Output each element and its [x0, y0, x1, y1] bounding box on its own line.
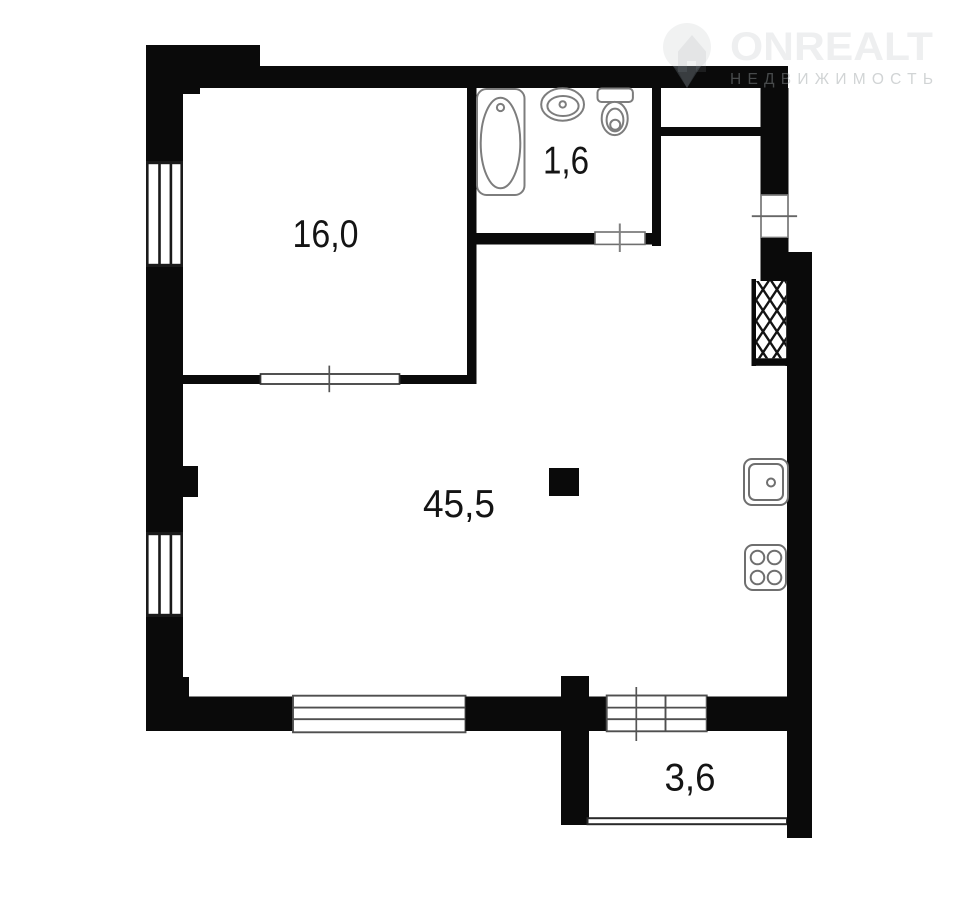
svg-text:1,6: 1,6 — [543, 138, 589, 182]
svg-text:45,5: 45,5 — [423, 483, 495, 526]
svg-text:ONREALT: ONREALT — [730, 25, 933, 69]
svg-text:16,0: 16,0 — [292, 212, 358, 256]
svg-text:3,6: 3,6 — [665, 757, 716, 800]
